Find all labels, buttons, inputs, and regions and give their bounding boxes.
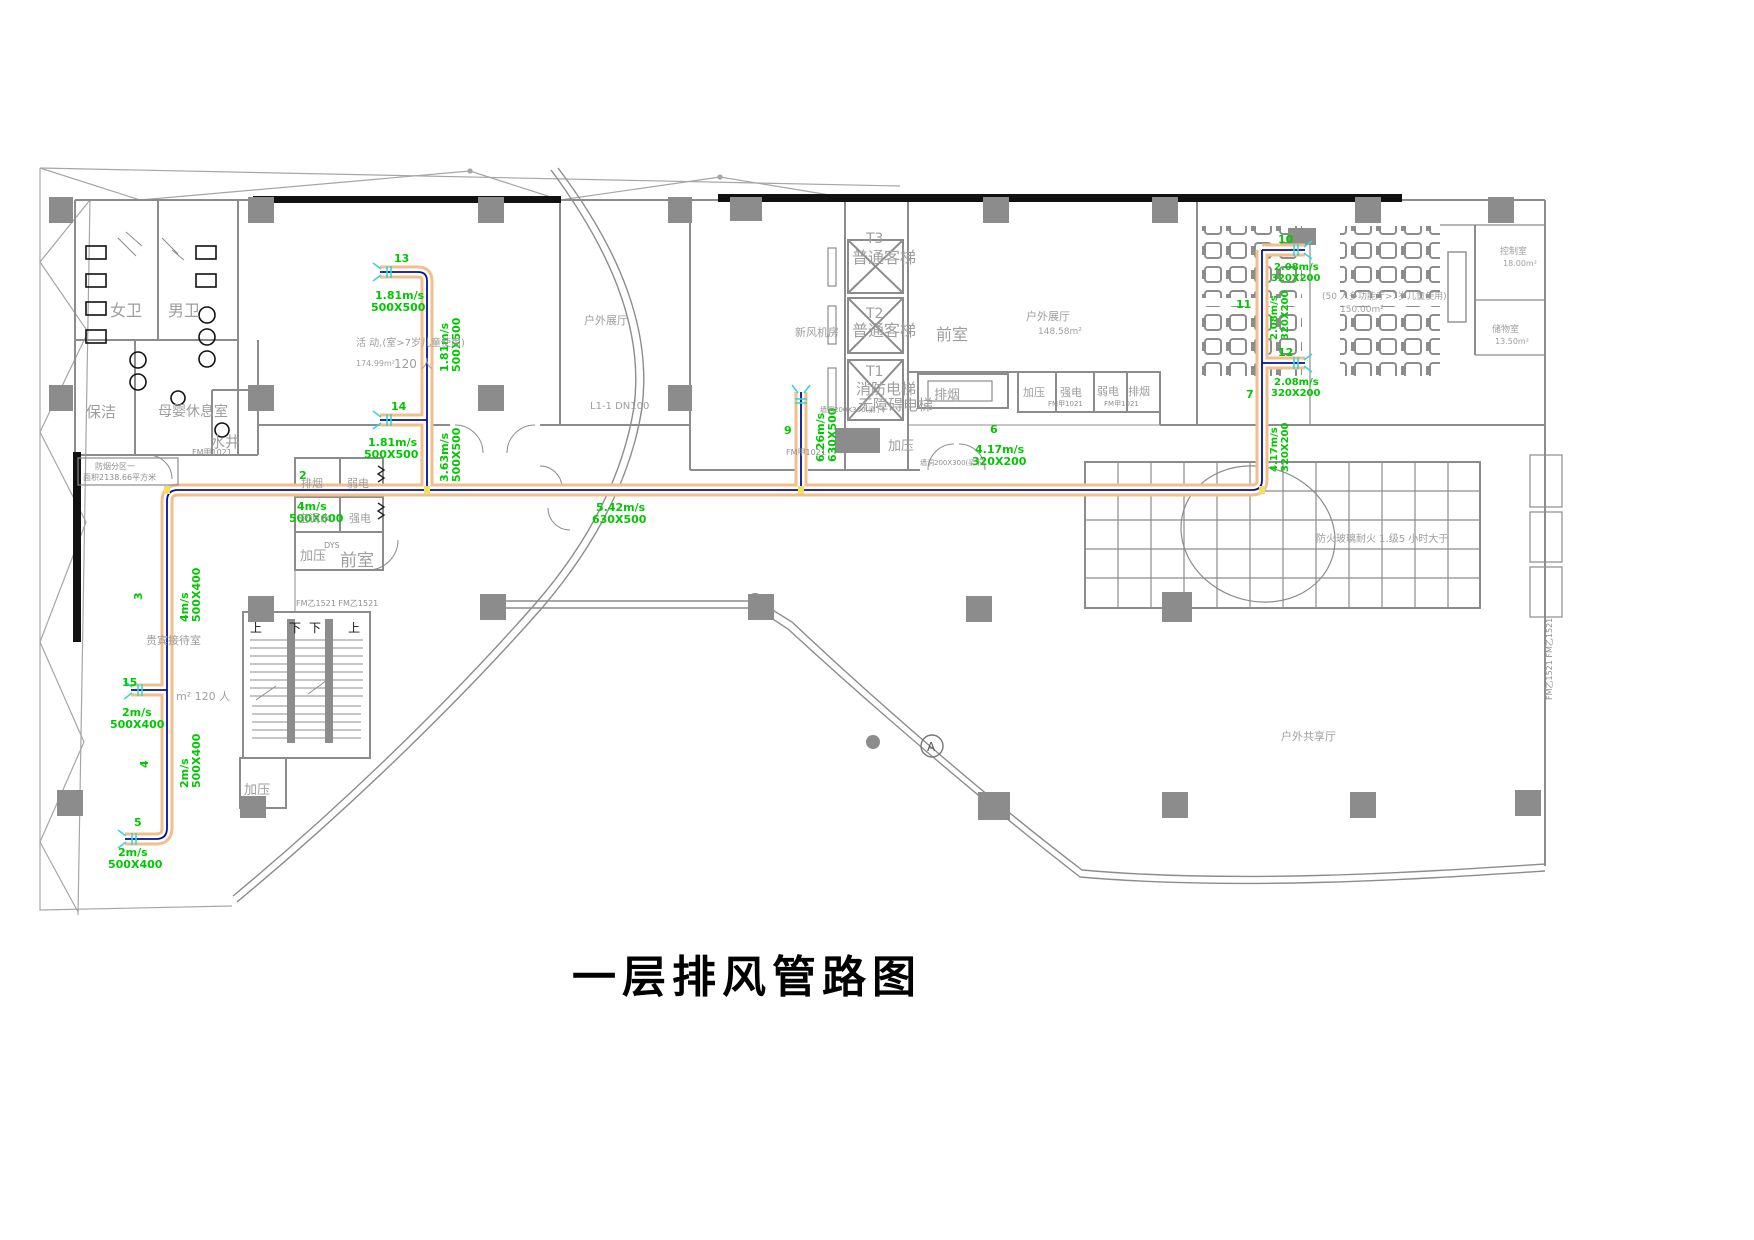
duct-num-15: 15 xyxy=(122,676,137,689)
duct-size-15: 500X400 xyxy=(110,718,165,731)
room-activity-name: 活 动,(室>7岁儿童使用) xyxy=(356,336,465,349)
datum-a-label: A xyxy=(927,740,936,754)
room-smoke-shaft: 排烟 xyxy=(934,388,960,403)
room-fresh-air: 新风机房 xyxy=(795,325,839,339)
room-multi-name: (50 人多功能厅>7岁儿童使用) xyxy=(1322,290,1447,302)
elevator-t2: T2 xyxy=(865,306,883,322)
blk-paiyan: 排烟 xyxy=(1128,384,1150,398)
room-multi-area: 150.00m² xyxy=(1340,305,1384,315)
room-vip-cap: m² 120 人 xyxy=(176,690,230,703)
duct-size-5: 500X400 xyxy=(108,858,163,871)
lblk-fm: FM乙1521 FM乙1521 xyxy=(296,599,378,608)
exhaust-ducts xyxy=(118,241,1312,848)
drawing-title: 一层排风管路图 xyxy=(572,952,922,1003)
duct-size-14: 500X500 xyxy=(364,448,419,461)
lblk-qiangdian: 强电 xyxy=(349,512,371,525)
duct-vel-11: 2.08m/s xyxy=(1269,295,1280,340)
room-labels: 女卫 男卫 保洁 母婴休息室 水井 FM甲1021 防烟分区一 面积2138.6… xyxy=(78,231,1554,798)
room-storage-area: 13.50m² xyxy=(1495,337,1529,346)
duct-size-10: 320X200 xyxy=(1271,273,1321,284)
right-fm-vertical: FM乙1521 FM乙1521 xyxy=(1545,618,1554,700)
elevator-t3: T3 xyxy=(865,231,883,247)
room-storage: 储物室 xyxy=(1492,323,1519,335)
fire-damper-left: FM甲1021 xyxy=(192,448,232,457)
duct-size-main: 630X500 xyxy=(592,513,647,526)
duct-num-14: 14 xyxy=(391,400,407,413)
blk-fm2: FM甲1021 xyxy=(1104,400,1139,408)
room-control-area: 18.00m² xyxy=(1503,259,1537,268)
duct-size-13: 500X500 xyxy=(371,301,426,314)
riser-damper-label: FM甲1021 xyxy=(786,448,826,457)
duct-size-11: 320X200 xyxy=(1280,291,1291,341)
stair-up1: 上 xyxy=(250,621,262,635)
room-bottom-jiaya: 加压 xyxy=(244,783,270,798)
room-outdoor-right: 户外展厅 xyxy=(1026,309,1070,323)
duct-num-riser: 9 xyxy=(784,424,792,437)
zone-box-line2: 面积2138.66平方米 xyxy=(83,472,156,482)
pipe-l1: L1-1 DN100 xyxy=(590,401,649,412)
room-outdoor-left: 户外展厅 xyxy=(584,313,628,327)
room-front-mid: 前室 xyxy=(936,325,968,344)
wall-hole-2: 墙洞200X300(梁下) xyxy=(920,458,985,467)
stair-dn2: 下 xyxy=(309,621,321,635)
room-womens-wc: 女卫 xyxy=(110,301,142,320)
duct-num-12: 12 xyxy=(1278,346,1293,359)
duct-num-6: 6 xyxy=(990,423,998,436)
blk-ruodian: 弱电 xyxy=(1097,385,1119,398)
duct-num-11: 11 xyxy=(1236,298,1251,311)
room-control: 控制室 xyxy=(1500,245,1527,257)
duct-size-act-low: 500X500 xyxy=(450,427,463,482)
floor-plan-drawing: 13 1.81m/s 500X500 1.81m/s 500X500 14 1.… xyxy=(0,0,1754,1240)
room-activity-area: 174.99m² xyxy=(356,359,395,368)
duct-size-3: 500X400 xyxy=(190,567,203,622)
duct-vel-12: 2.08m/s xyxy=(1274,377,1319,388)
room-cleaning: 保洁 xyxy=(86,403,116,421)
floor-plan-page: 13 1.81m/s 500X500 1.81m/s 500X500 14 1.… xyxy=(0,0,1754,1240)
room-shared-hall: 户外共享厅 xyxy=(1281,729,1336,743)
duct-size-4: 500X400 xyxy=(190,733,203,788)
stair-up2: 上 xyxy=(348,621,360,635)
room-activity-cap: 120 人 xyxy=(394,357,433,371)
columns xyxy=(49,197,1541,820)
lblk-ruodian: 弱电 xyxy=(347,477,369,490)
blk-qiangdian: 强电 xyxy=(1060,386,1082,399)
elevator-t2-type: 普通客梯 xyxy=(852,321,916,340)
duct-vel-riser-low: 4.17m/s xyxy=(1269,427,1280,472)
duct-labels: 13 1.81m/s 500X500 1.81m/s 500X500 14 1.… xyxy=(108,233,1321,871)
blk-jiaya: 加压 xyxy=(1023,386,1045,399)
duct-centerlines xyxy=(125,250,1305,839)
lblk-dys: DYS xyxy=(324,541,340,550)
duct-num-10: 10 xyxy=(1278,233,1294,246)
wall-hole-1: 墙洞200X300(梁下) xyxy=(820,405,885,414)
duct-num-7: 7 xyxy=(1246,388,1254,401)
room-t1-pressure: 加压 xyxy=(888,439,914,454)
room-nursing: 母婴休息室 xyxy=(158,403,228,420)
blk-fm1: FM甲1021 xyxy=(1048,400,1083,408)
plaza-edge xyxy=(480,593,1545,883)
elevator-t1: T1 xyxy=(865,364,883,380)
elevator-t3-type: 普通客梯 xyxy=(852,248,916,267)
room-outdoor-right-area: 148.58m² xyxy=(1038,327,1082,337)
lblk-ktshui: 空调水 xyxy=(298,511,331,525)
duct-vel-10: 2.08m/s xyxy=(1274,262,1319,273)
duct-size-riser-low: 320X200 xyxy=(1280,423,1291,473)
stair-dn1: 下 xyxy=(289,621,301,635)
duct-num-13: 13 xyxy=(394,252,409,265)
lblk-paiyan: 排烟 xyxy=(301,476,323,490)
lblk-jiaya: 加压 xyxy=(300,549,326,564)
duct-size-12: 320X200 xyxy=(1271,388,1321,399)
fire-glass-note: 防火玻璃耐火 1.级5 小时大于 xyxy=(1316,532,1448,545)
duct-num-4: 4 xyxy=(138,760,151,768)
duct-num-5: 5 xyxy=(134,816,142,829)
lblk-qianshi: 前室 xyxy=(340,551,374,571)
room-mens-wc: 男卫 xyxy=(168,301,200,320)
duct-size-riser: 630X500 xyxy=(826,407,839,462)
room-vip: 贵宾接待室 xyxy=(146,633,201,647)
zone-box-line1: 防烟分区一 xyxy=(95,461,135,471)
duct-num-3: 3 xyxy=(132,592,145,600)
